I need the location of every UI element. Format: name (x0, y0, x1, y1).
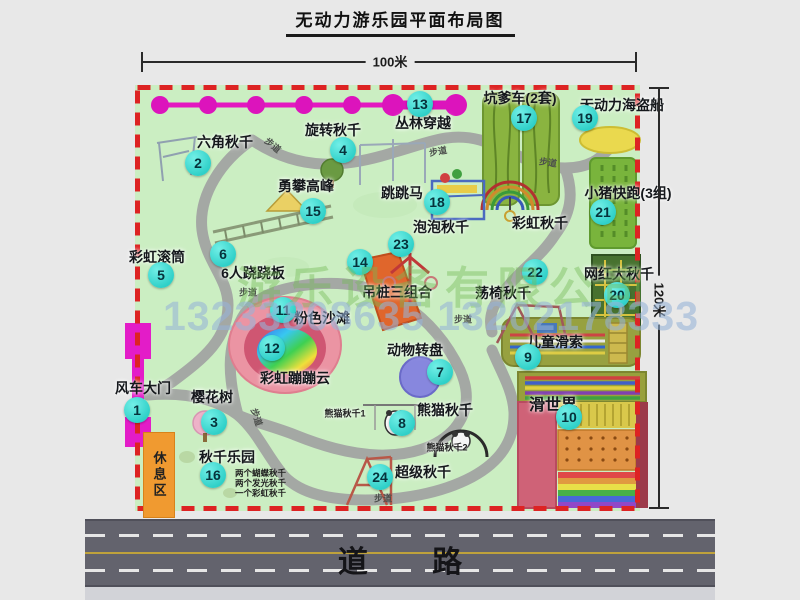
badge-20: 20 (604, 282, 630, 308)
swing-park-detail-2: 两个发光秋千 (235, 478, 286, 488)
label-panda-swing-2: 熊猫秋千2 (426, 441, 467, 454)
footpath-tag: 步道 (538, 154, 558, 169)
width-dimension-label: 100米 (366, 52, 415, 71)
swing-park-detail-3: 一个彩虹秋千 (235, 488, 286, 498)
label-rainbow-swing: 彩虹秋千 (512, 213, 568, 233)
title-bar: 无动力游乐园平面布局图 (0, 6, 800, 37)
badge-19: 19 (572, 105, 598, 131)
badge-13: 13 (407, 91, 433, 117)
label-animal-carousel: 动物转盘 (387, 340, 443, 360)
footpath-tag: 步道 (374, 492, 392, 505)
badge-16: 16 (200, 462, 226, 488)
badge-6: 6 (210, 241, 236, 267)
label-cherry-tree: 樱花树 (191, 387, 233, 407)
road: 道 路 (85, 519, 715, 587)
badge-14: 14 (347, 249, 373, 275)
rest-area-label: 休息区 (150, 451, 169, 499)
label-windmill-gate: 风车大门 (115, 378, 171, 398)
label-rainbow-cloud: 彩虹蹦蹦云 (260, 368, 330, 388)
top-dim-tick-right (635, 52, 637, 72)
badge-18: 18 (424, 189, 450, 215)
right-dim-tick-top (649, 87, 669, 89)
swing-park-detail-1: 两个蝴蝶秋千 (235, 468, 286, 478)
badge-4: 4 (330, 137, 356, 163)
badge-22: 22 (522, 259, 548, 285)
footpath-tag: 步道 (454, 313, 472, 326)
label-climbing-peak: 勇攀高峰 (278, 176, 334, 196)
height-dimension-label: 120米 (651, 276, 670, 325)
footpath-tag: 步道 (239, 286, 257, 299)
badge-12: 12 (259, 335, 285, 361)
page-title: 无动力游乐园平面布局图 (286, 6, 515, 37)
label-pink-beach: 粉色沙滩 (294, 308, 350, 328)
swing-park-details: 两个蝴蝶秋千 两个发光秋千 一个彩虹秋千 (235, 468, 286, 498)
road-label: 道 路 (85, 537, 715, 581)
label-hanging-piles: 吊桩三组合 (362, 282, 432, 302)
label-rotating-swing: 旋转秋千 (305, 120, 361, 140)
rest-area-box: 休息区 (143, 432, 175, 518)
park-layout-page: 无动力游乐园平面布局图 100米 120米 (0, 0, 800, 600)
badge-8: 8 (389, 410, 415, 436)
badge-17: 17 (511, 105, 537, 131)
badge-1: 1 (124, 397, 150, 423)
badge-5: 5 (148, 262, 174, 288)
label-bubble-swing: 泡泡秋千 (413, 217, 469, 237)
label-panda-swing: 熊猫秋千 (417, 400, 473, 420)
badge-24: 24 (367, 464, 393, 490)
top-dim-tick-left (141, 52, 143, 72)
badge-23: 23 (388, 231, 414, 257)
label-super-swing: 超级秋千 (395, 462, 451, 482)
badge-7: 7 (427, 359, 453, 385)
label-seesaw: 6人跷跷板 (221, 263, 285, 283)
label-panda-swing-1: 熊猫秋千1 (324, 407, 365, 420)
badge-3: 3 (201, 409, 227, 435)
label-hex-swing: 六角秋千 (197, 132, 253, 152)
badge-11: 11 (270, 297, 296, 323)
park-map: 休息区 风车大门 六角秋千 樱花树 旋转秋千 彩虹滚筒 6人跷跷板 动物转盘 熊… (135, 85, 640, 511)
label-net-swing: 网红大秋千 (584, 264, 654, 284)
badge-10: 10 (556, 404, 582, 430)
label-chair-swing: 荡椅秋千 (475, 283, 531, 303)
road-shoulder (85, 587, 715, 600)
badge-9: 9 (515, 344, 541, 370)
badge-15: 15 (300, 198, 326, 224)
badge-2: 2 (185, 150, 211, 176)
right-dim-tick-bottom (649, 507, 669, 509)
badge-21: 21 (590, 199, 616, 225)
label-jumping-horse: 跳跳马 (381, 183, 423, 203)
